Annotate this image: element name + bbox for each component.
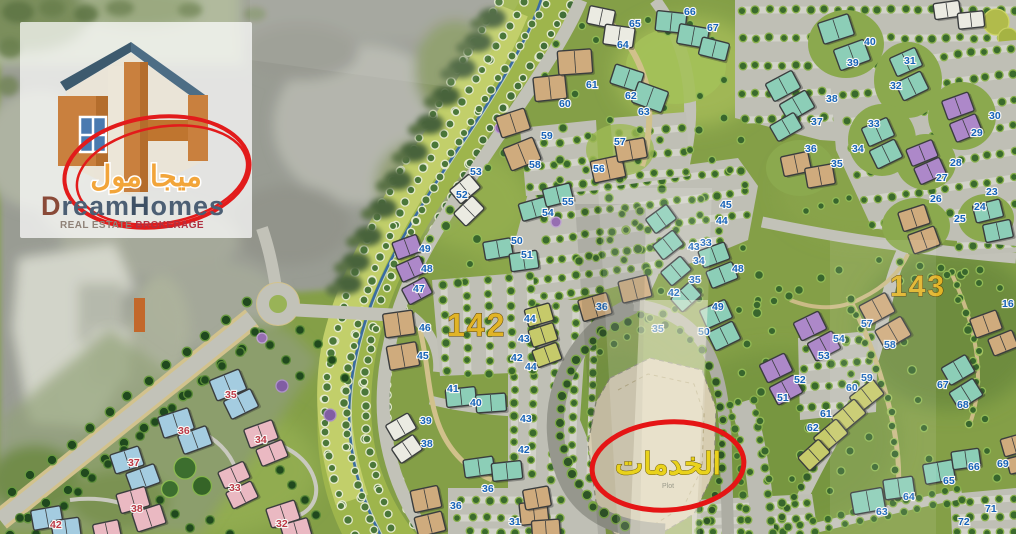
- svg-text:DreamHomes: DreamHomes: [41, 191, 225, 221]
- svg-text:Plot: Plot: [662, 483, 674, 490]
- svg-text:REAL ESTATE BROKERAGE: REAL ESTATE BROKERAGE: [60, 220, 204, 231]
- svg-text:الخدمات: الخدمات: [615, 448, 721, 481]
- svg-text:ميجا مول: ميجا مول: [90, 161, 201, 194]
